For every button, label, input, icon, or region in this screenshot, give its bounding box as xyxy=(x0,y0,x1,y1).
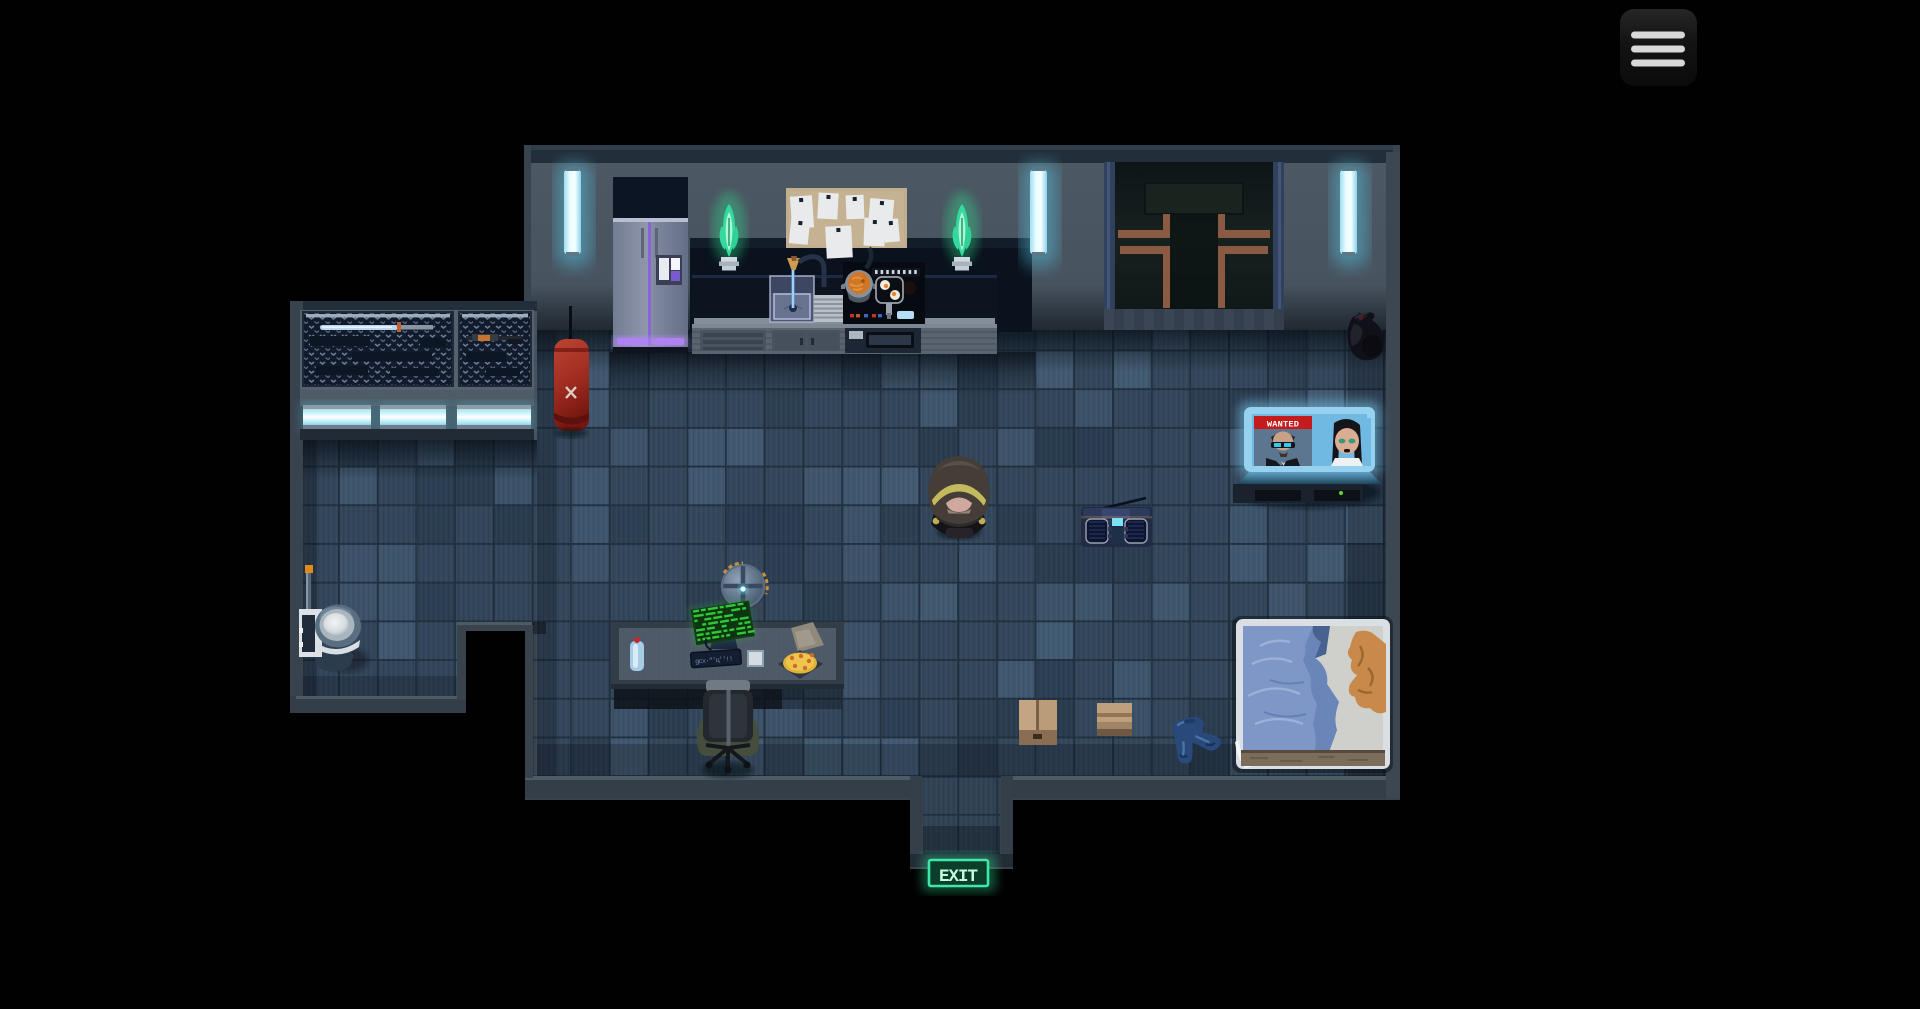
svg-text:EXIT: EXIT xyxy=(939,867,978,887)
svg-text:WANTED: WANTED xyxy=(1267,420,1299,430)
